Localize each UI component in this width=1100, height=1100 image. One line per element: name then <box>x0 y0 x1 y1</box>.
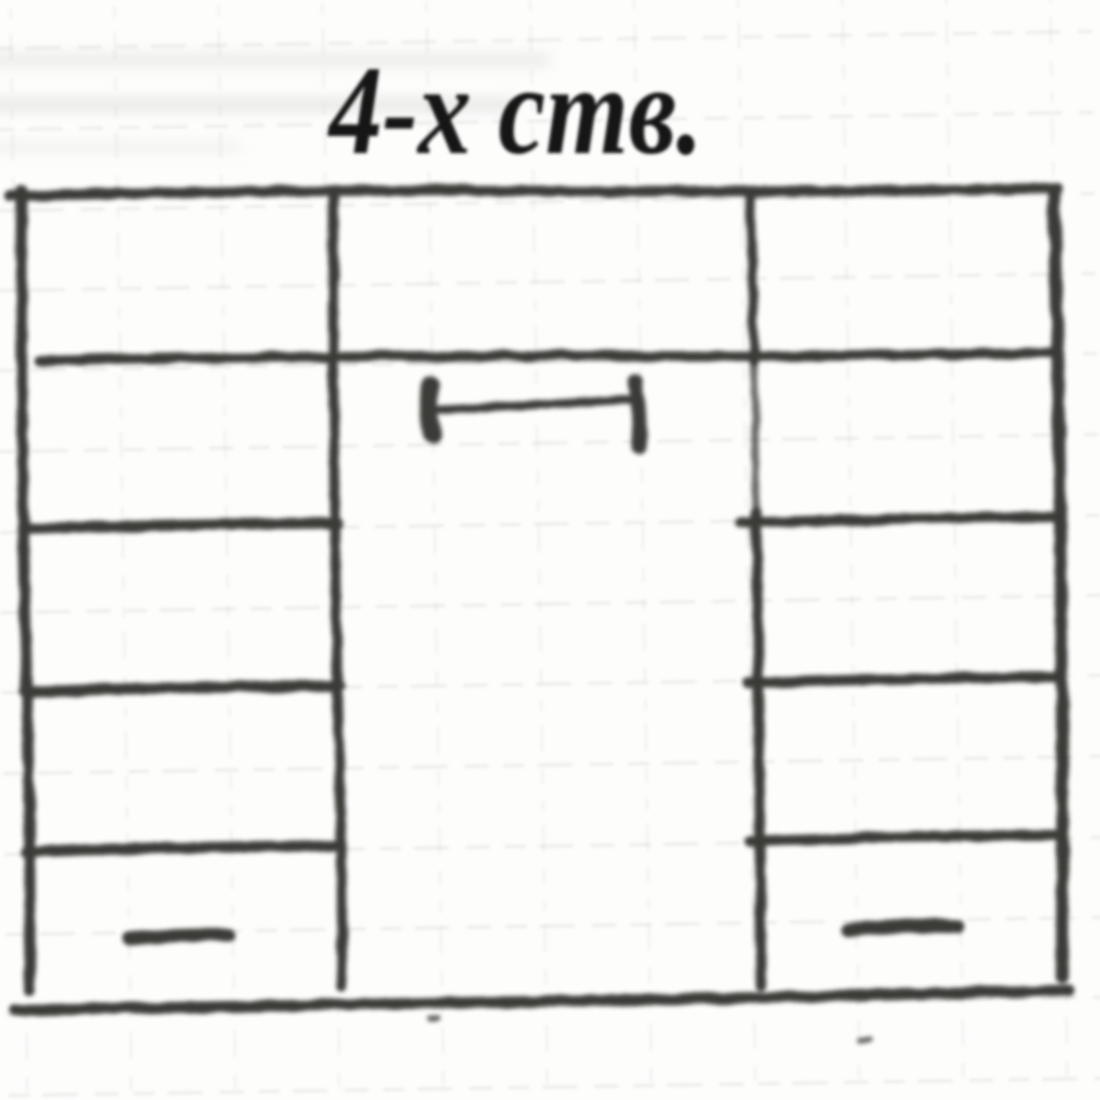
svg-text:4-х ств.: 4-х ств. <box>327 41 703 181</box>
